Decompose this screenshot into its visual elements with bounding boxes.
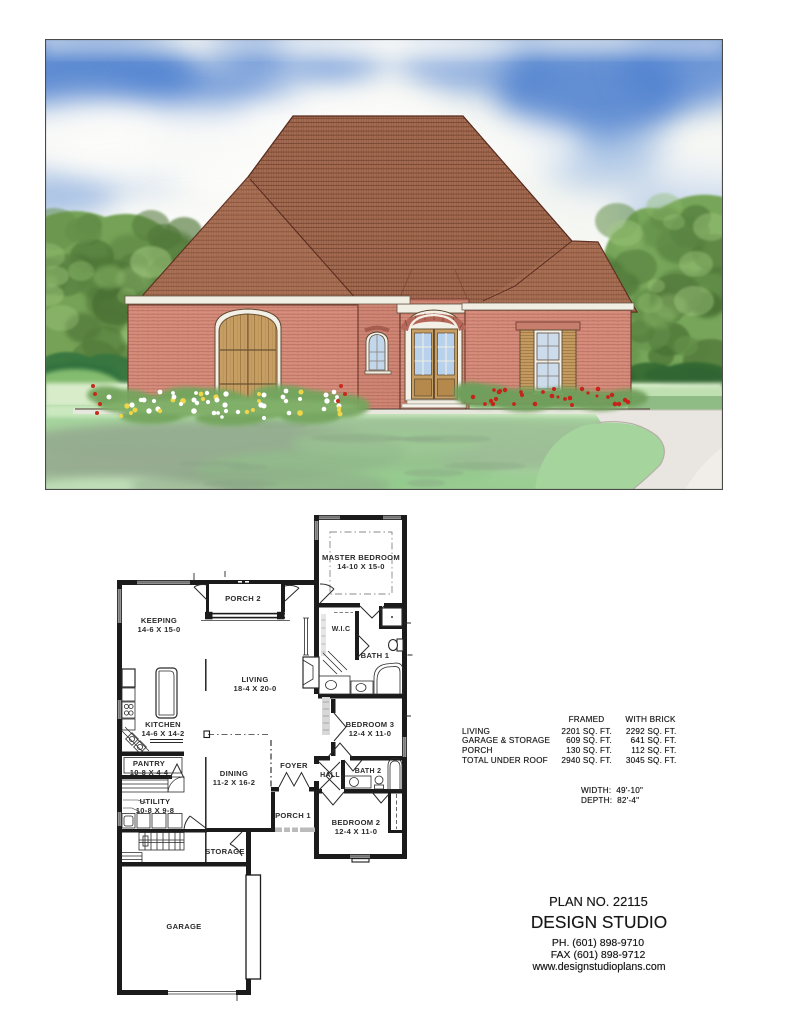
svg-text:PORCH 1: PORCH 1 <box>275 811 311 820</box>
svg-text:11-2 X 16-2: 11-2 X 16-2 <box>213 778 256 787</box>
svg-text:12-4 X 11-0: 12-4 X 11-0 <box>349 729 392 738</box>
svg-text:PANTRY: PANTRY <box>133 759 165 768</box>
svg-text:LIVING: LIVING <box>241 675 268 684</box>
svg-text:UTILITY: UTILITY <box>140 797 171 806</box>
svg-text:FOYER: FOYER <box>280 761 308 770</box>
svg-text:HALL: HALL <box>320 772 340 779</box>
svg-text:10-8 X 4-4: 10-8 X 4-4 <box>130 768 169 777</box>
svg-text:14-6 X 14-2: 14-6 X 14-2 <box>142 729 185 738</box>
svg-text:12-4 X 11-0: 12-4 X 11-0 <box>335 827 378 836</box>
svg-text:GARAGE: GARAGE <box>166 922 201 931</box>
svg-text:BEDROOM 3: BEDROOM 3 <box>346 720 395 729</box>
svg-text:DINING: DINING <box>220 769 248 778</box>
svg-text:18-4 X 20-0: 18-4 X 20-0 <box>234 684 277 693</box>
svg-text:14-10 X 15-0: 14-10 X 15-0 <box>337 562 385 571</box>
svg-text:10-8 X 9-8: 10-8 X 9-8 <box>136 806 174 815</box>
svg-text:PORCH 2: PORCH 2 <box>225 594 261 603</box>
svg-text:KITCHEN: KITCHEN <box>145 720 181 729</box>
svg-text:BATH 1: BATH 1 <box>361 651 390 660</box>
svg-text:KEEPING: KEEPING <box>141 616 177 625</box>
svg-text:14-6 X 15-0: 14-6 X 15-0 <box>138 625 181 634</box>
svg-text:W.I.C: W.I.C <box>332 626 351 633</box>
svg-text:BATH 2: BATH 2 <box>355 768 382 775</box>
svg-text:BEDROOM 2: BEDROOM 2 <box>332 818 381 827</box>
svg-text:MASTER BEDROOM: MASTER BEDROOM <box>322 553 400 562</box>
svg-text:STORAGE: STORAGE <box>205 847 245 856</box>
